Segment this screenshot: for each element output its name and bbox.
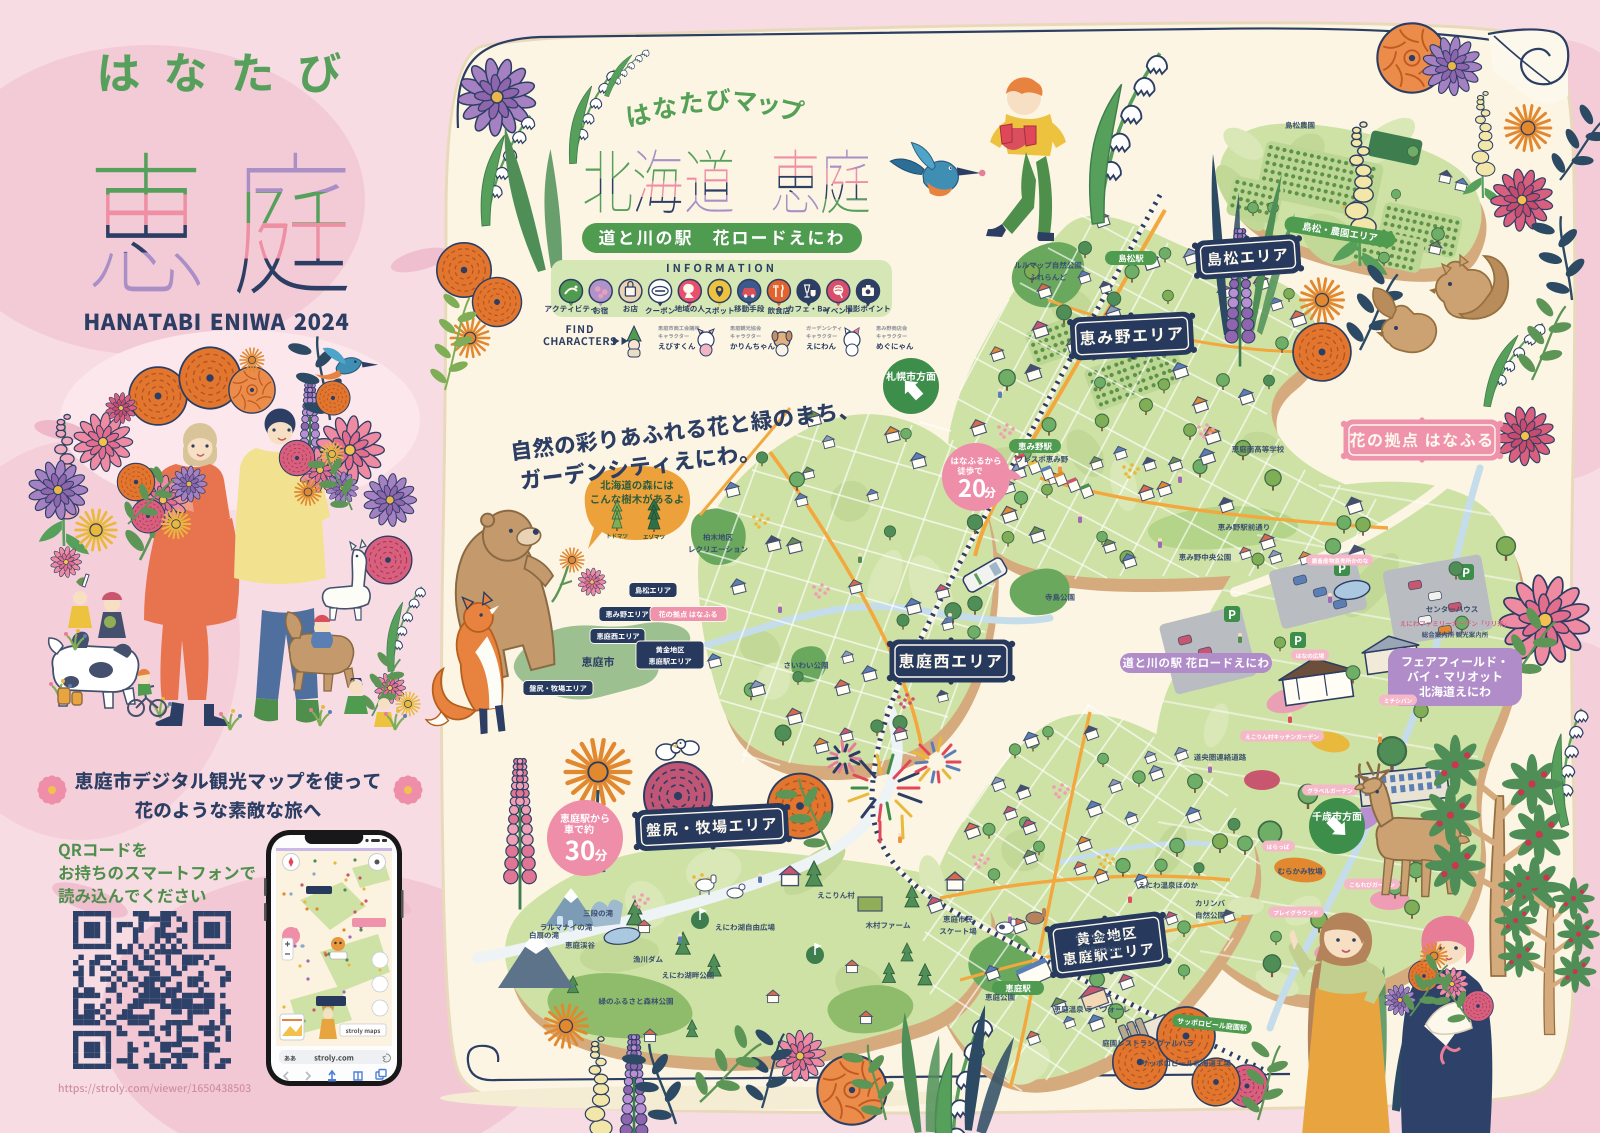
svg-text:恵庭西エリア: 恵庭西エリア: [898, 648, 1003, 672]
svg-text:道と川の駅 花ロードえにわ: 道と川の駅 花ロードえにわ: [599, 224, 846, 249]
svg-text:えこりん村: えこりん村: [817, 890, 855, 901]
svg-text:自然公園: 自然公園: [1195, 910, 1225, 921]
svg-text:農畜産物直売所かのな: 農畜産物直売所かのな: [1312, 556, 1369, 565]
svg-text:島松エリア: 島松エリア: [635, 586, 671, 596]
svg-text:キャラクター: キャラクター: [730, 333, 761, 340]
svg-text:センターハウス: センターハウス: [1426, 604, 1479, 615]
svg-text:移動手段: 移動手段: [734, 304, 765, 315]
svg-text:分: 分: [594, 845, 607, 864]
svg-text:キャラクター: キャラクター: [806, 333, 837, 340]
svg-text:地域の人: 地域の人: [675, 304, 706, 315]
svg-text:プレイグラウンド: プレイグラウンド: [1273, 908, 1319, 917]
svg-text:恵庭公園: 恵庭公園: [985, 992, 1015, 1003]
svg-text:道央圏連絡道路: 道央圏連絡道路: [1194, 752, 1247, 763]
svg-text:恵み野商店会: 恵み野商店会: [876, 325, 908, 332]
svg-text:花の拠点 はなふる: 花の拠点 はなふる: [1349, 427, 1494, 451]
svg-text:キャラクター: キャラクター: [658, 333, 689, 340]
svg-text:黄金地区: 黄金地区: [656, 646, 685, 656]
svg-text:ホースガーデン: ホースガーデン: [1074, 932, 1127, 943]
svg-text:INFORMATION: INFORMATION: [666, 260, 777, 276]
svg-text:緑のふるさと森林公園: 緑のふるさと森林公園: [599, 996, 674, 1007]
svg-text:柏木地区: 柏木地区: [703, 532, 733, 543]
svg-text:寺島公園: 寺島公園: [1045, 592, 1075, 603]
svg-text:漁川ダム: 漁川ダム: [633, 954, 663, 965]
svg-text:ふれらんど: ふれらんど: [1029, 272, 1067, 283]
svg-text:島松駅: 島松駅: [1118, 253, 1144, 265]
svg-text:恵庭温泉 ラ・フォーレ: 恵庭温泉 ラ・フォーレ: [1054, 1004, 1131, 1015]
svg-text:道と川の駅 花ロードえにわ: 道と川の駅 花ロードえにわ: [1122, 655, 1269, 671]
svg-text:恵庭市: 恵庭市: [582, 654, 615, 670]
svg-text:トドマツ: トドマツ: [606, 532, 629, 540]
svg-text:盤尻・牧場エリア: 盤尻・牧場エリア: [529, 684, 587, 694]
svg-text:フレスポ恵み野: フレスポ恵み野: [1016, 454, 1069, 465]
svg-text:えにわ湖自由広場: えにわ湖自由広場: [715, 922, 775, 933]
svg-text:恵庭観光協会: 恵庭観光協会: [730, 325, 762, 332]
svg-text:恵庭南高等学校: 恵庭南高等学校: [1232, 444, 1285, 455]
svg-text:むらかみ牧場: むらかみ牧場: [1278, 866, 1323, 877]
svg-text:お店: お店: [623, 304, 639, 315]
svg-text:アクティビティ: アクティビティ: [544, 304, 597, 315]
svg-text:えにわ温泉ほのか: えにわ温泉ほのか: [1138, 880, 1198, 891]
svg-text:総合案内所 観光案内所: 総合案内所 観光案内所: [1422, 629, 1489, 639]
svg-text:ガーデンシティ: ガーデンシティ: [806, 325, 842, 332]
svg-text:えこりん村キッチンガーデン: えこりん村キッチンガーデン: [1245, 732, 1319, 741]
svg-text:こんな樹木があるよ: こんな樹木があるよ: [590, 492, 685, 507]
svg-text:分: 分: [984, 484, 996, 501]
svg-text:P: P: [1294, 632, 1302, 649]
svg-text:レクリエーション: レクリエーション: [688, 544, 748, 555]
svg-text:ルルマップ自然公園: ルルマップ自然公園: [1014, 260, 1082, 271]
svg-text:キャラクター: キャラクター: [876, 333, 907, 340]
svg-text:スケート場: スケート場: [939, 926, 977, 937]
svg-text:20: 20: [958, 469, 986, 504]
svg-text:ミチシバン: ミチシバン: [1384, 696, 1413, 705]
svg-text:恵庭市商工会議所: 恵庭市商工会議所: [658, 325, 700, 332]
svg-text:恵み野エリア: 恵み野エリア: [605, 610, 648, 620]
svg-text:stroly.com: stroly.com: [314, 1053, 354, 1064]
svg-text:北海道えにわ: 北海道えにわ: [1419, 683, 1491, 700]
svg-text:えにわファミリーガーデン「リリ来」: えにわファミリーガーデン「リリ来」: [1400, 618, 1511, 628]
svg-text:撮影ポイント: 撮影ポイント: [845, 304, 891, 315]
svg-text:stroly maps: stroly maps: [346, 1026, 381, 1035]
svg-text:はらっぱ: はらっぱ: [1267, 842, 1290, 851]
svg-text:札幌市方面: 札幌市方面: [886, 368, 936, 383]
svg-text:P: P: [1462, 564, 1470, 581]
svg-text:はなの広場: はなの広場: [1296, 651, 1325, 660]
svg-text:恵み野中央公園: 恵み野中央公園: [1179, 552, 1232, 563]
svg-text:三段の滝: 三段の滝: [583, 908, 613, 919]
svg-text:恵庭渓谷: 恵庭渓谷: [565, 940, 595, 951]
svg-text:恵み野駅: 恵み野駅: [1018, 441, 1053, 453]
svg-text:恵み野駅前通り: 恵み野駅前通り: [1218, 522, 1271, 533]
svg-text:えびすくん: えびすくん: [658, 341, 696, 352]
svg-text:白扇の滝: 白扇の滝: [529, 930, 559, 941]
svg-text:エゾマツ: エゾマツ: [643, 533, 666, 541]
svg-text:えにわん: えにわん: [806, 341, 836, 352]
svg-text:恵庭西エリア: 恵庭西エリア: [596, 632, 639, 642]
svg-text:P: P: [1228, 606, 1236, 623]
svg-text:花の拠点 はなふる: 花の拠点 はなふる: [658, 610, 717, 620]
svg-text:島松農園: 島松農園: [1285, 120, 1315, 131]
svg-text:めぐにゃん: めぐにゃん: [876, 341, 914, 352]
svg-text:MURANAKA: MURANAKA: [1079, 944, 1121, 955]
svg-text:木村ファーム: 木村ファーム: [866, 920, 911, 931]
svg-text:グラベルガーデン: グラベルガーデン: [1307, 786, 1353, 795]
svg-text:恵庭駅エリア: 恵庭駅エリア: [648, 657, 691, 667]
svg-text:スポット: スポット: [704, 306, 734, 317]
svg-text:CHARACTERS: CHARACTERS: [543, 334, 617, 349]
svg-text:庭園レストラン ヴァルハラ: 庭園レストラン ヴァルハラ: [1102, 1038, 1194, 1049]
svg-text:サッポロビール北海道工場: サッポロビール北海道工場: [1141, 1058, 1231, 1069]
svg-text:かりんちゃん: かりんちゃん: [730, 341, 775, 352]
svg-text:カリンバ: カリンバ: [1195, 898, 1225, 909]
svg-text:えにわ湖畔公園: えにわ湖畔公園: [662, 970, 715, 981]
svg-text:30: 30: [565, 831, 596, 868]
svg-text:ああ: ああ: [284, 1054, 296, 1063]
svg-text:恵庭市民: 恵庭市民: [943, 914, 973, 925]
svg-text:クーポン: クーポン: [645, 306, 676, 317]
svg-text:お宿: お宿: [593, 306, 609, 317]
svg-text:北海道の森には: 北海道の森には: [600, 478, 674, 493]
svg-text:さいわい公園: さいわい公園: [784, 660, 829, 671]
